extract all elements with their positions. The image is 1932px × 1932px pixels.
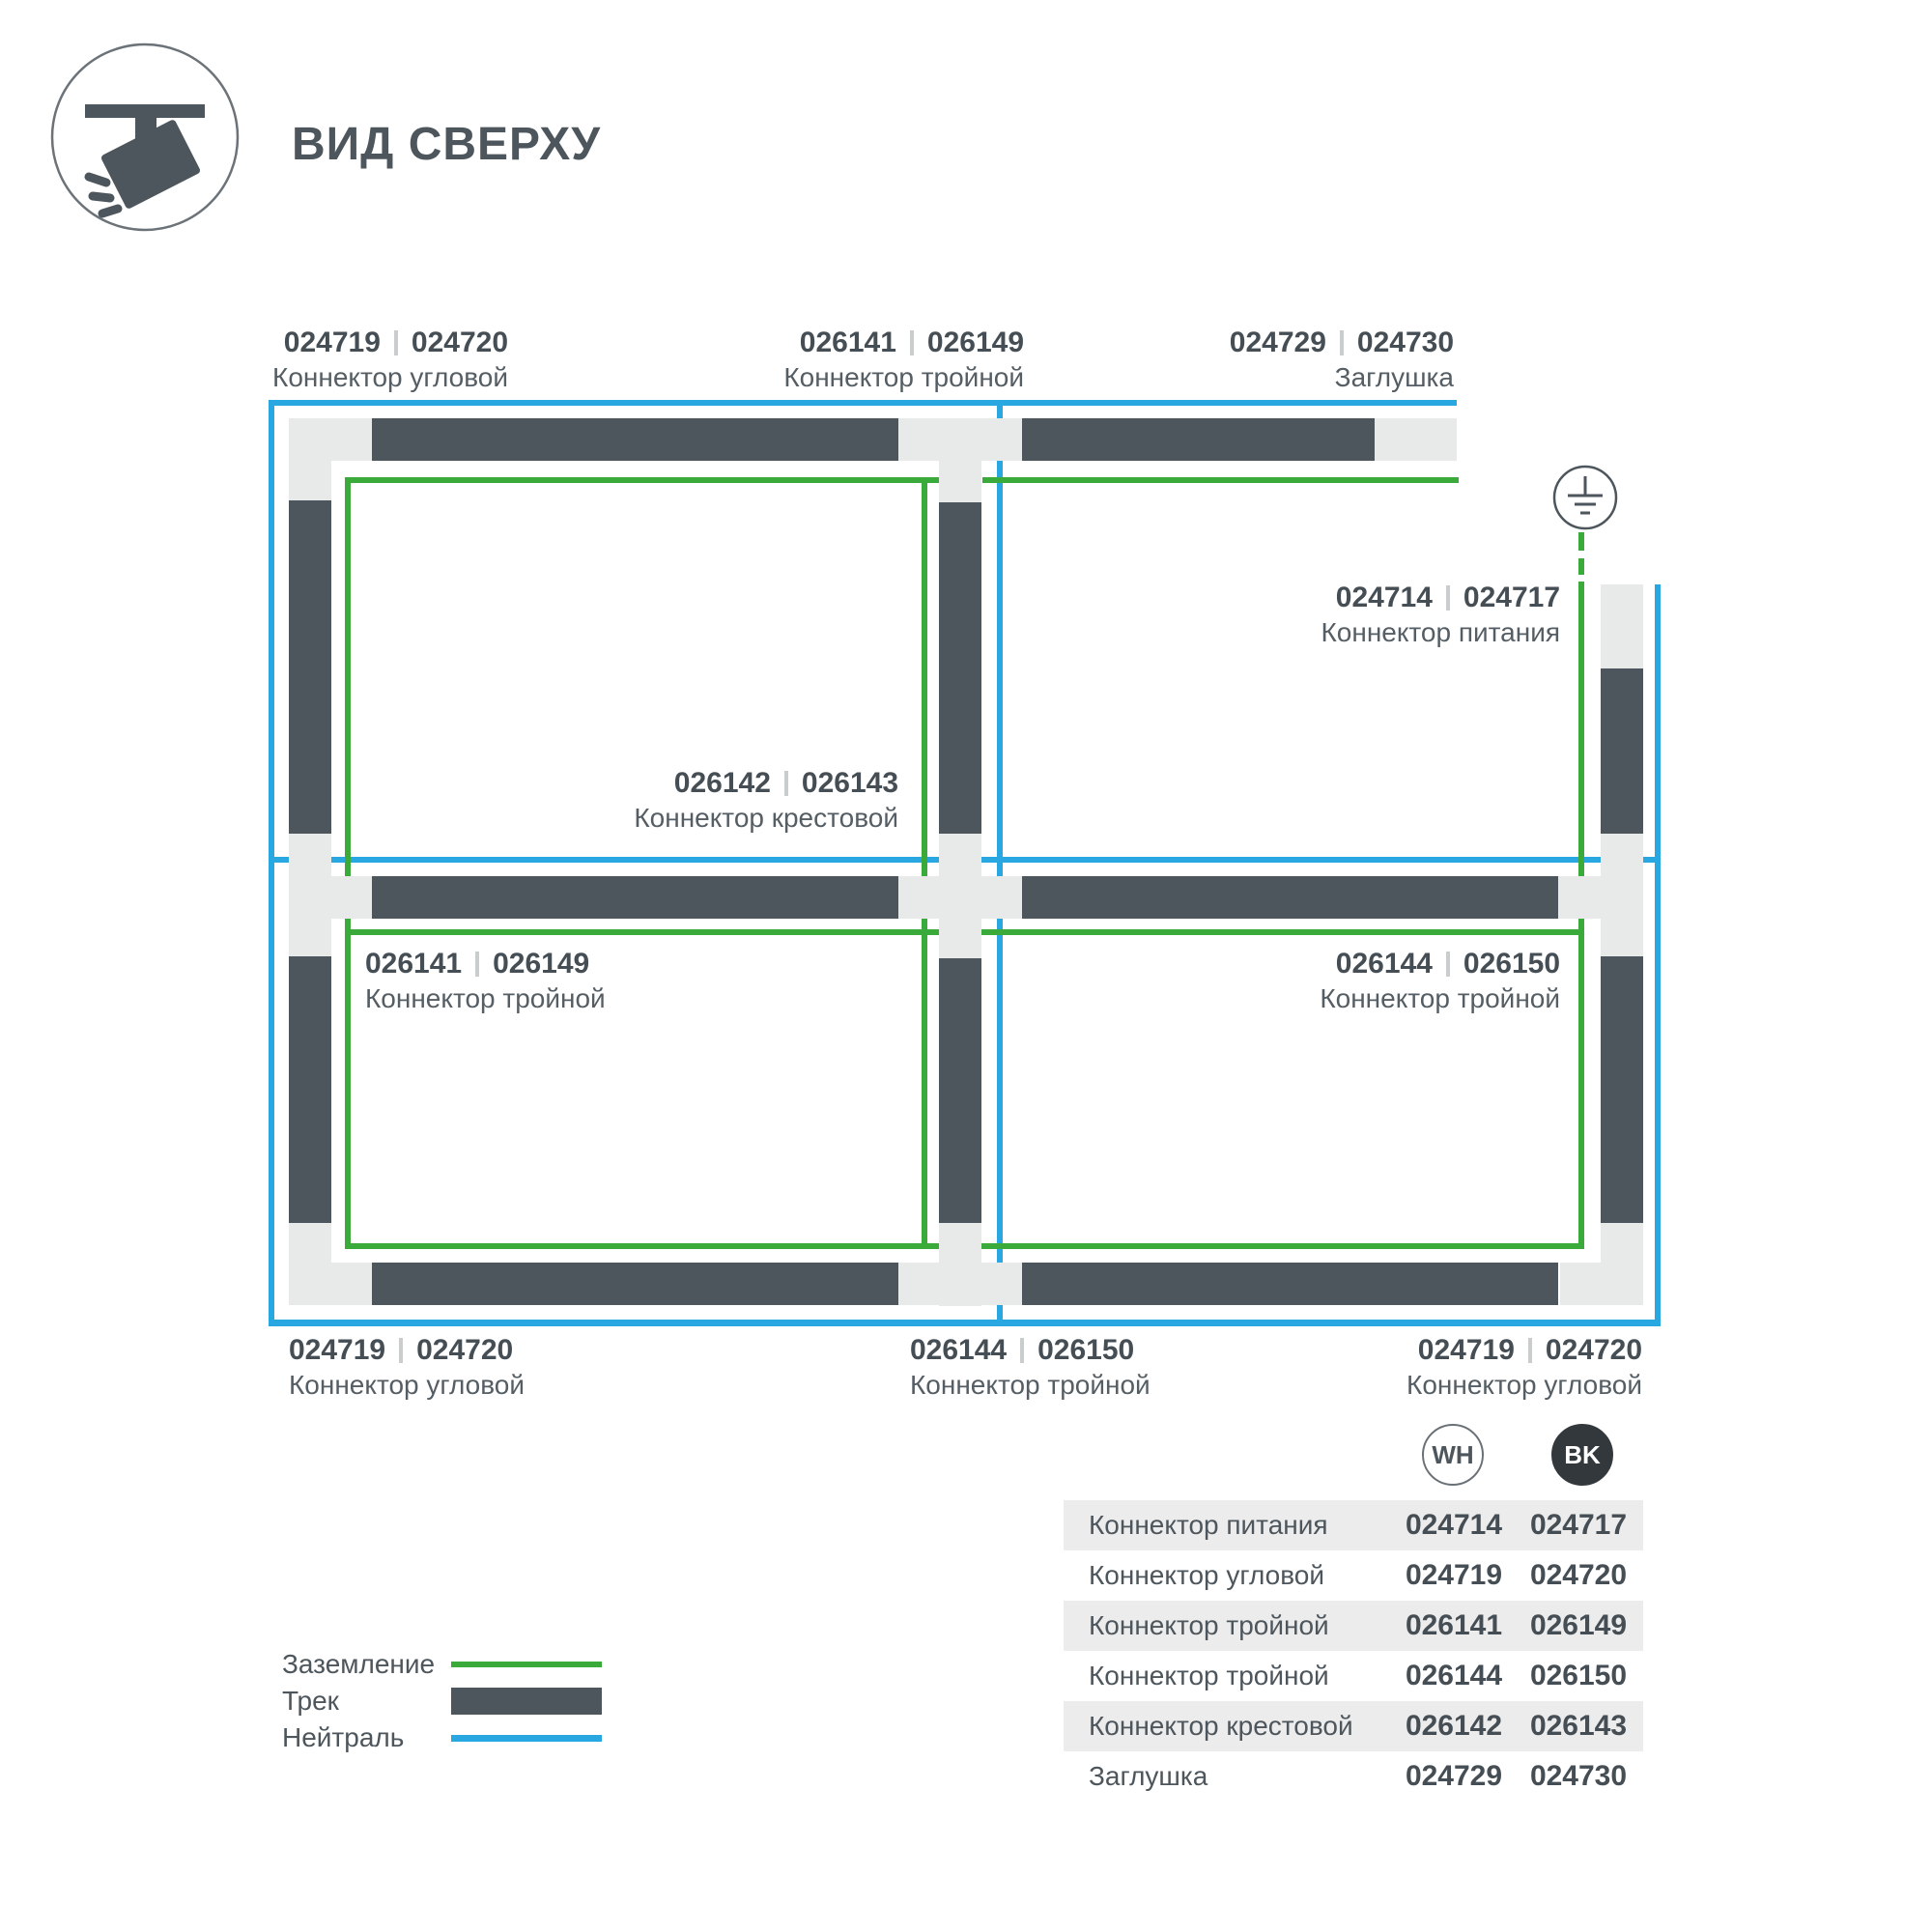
part-name: Коннектор угловой [289,1369,525,1402]
table-row: Коннектор угловой024719024720 [1064,1550,1643,1601]
tee-connector-top [939,418,981,502]
track-segment [289,956,331,1223]
table-row: Коннектор тройной026141026149 [1064,1601,1643,1651]
label-tee-connector-bottom: 026144026150 Коннектор тройной [910,1334,1151,1402]
color-badge-bk: BK [1551,1424,1613,1486]
track-segment [939,958,981,1223]
tee-connector-left [289,834,331,956]
part-number-table: Коннектор питания024714024717 Коннектор … [1064,1500,1643,1802]
divider [1528,1338,1532,1363]
grounding-earth-icon [1551,464,1619,531]
track-segment [289,500,331,834]
track-segment [1022,418,1375,461]
ground-line-middle-vertical [922,477,927,1249]
track-segment [1022,1263,1558,1305]
power-connector [1601,584,1643,668]
ground-line-swatch [451,1662,602,1667]
track-segment [939,502,981,834]
table-row: Заглушка024729024730 [1064,1751,1643,1802]
divider [784,771,788,796]
label-tee-connector-right: 026144026150 Коннектор тройной [1320,948,1560,1015]
divider [475,952,479,977]
label-power-connector: 024714024717 Коннектор питания [1321,582,1560,649]
part-codes: 024719024720 [289,1334,525,1367]
track-segment [1601,956,1643,1223]
ground-line-dash-1 [1578,532,1584,551]
label-corner-connector-bottom-left: 024719024720 Коннектор угловой [289,1334,525,1402]
neutral-line-middle-vertical [997,400,1003,1326]
table-row: Коннектор тройной026144026150 [1064,1651,1643,1701]
ground-line-bottom-a [345,1243,940,1249]
track-segment [1601,668,1643,834]
neutral-line-bottom [269,1320,1661,1326]
divider [399,1338,403,1363]
legend-label: Трек [282,1686,451,1717]
part-name: Коннектор угловой [272,361,508,394]
label-end-cap: 024729024730 Заглушка [1230,327,1454,394]
part-codes: 026142026143 [634,767,898,800]
part-codes: 024714024717 [1321,582,1560,614]
ground-line-top-b [982,477,1459,483]
legend-item-ground: Заземление [282,1646,602,1683]
ground-line-left-vertical [345,477,351,1249]
part-codes: 024719024720 [1406,1334,1642,1367]
neutral-line-swatch [451,1735,602,1742]
divider [1446,585,1450,611]
label-tee-connector-left: 026141026149 Коннектор тройной [365,948,606,1015]
divider [910,330,914,355]
page: { "page": { "title": "ВИД СВЕРХУ" }, "co… [0,0,1932,1932]
legend-item-neutral: Нейтраль [282,1719,602,1756]
legend: Заземление Трек Нейтраль [282,1646,602,1756]
table-row: Коннектор питания024714024717 [1064,1500,1643,1550]
legend-label: Нейтраль [282,1722,451,1753]
track-segment [372,876,898,919]
end-cap [1375,418,1457,461]
spotlight-top-view-icon [48,41,241,234]
part-codes: 026141026149 [365,948,606,980]
part-name: Коннектор тройной [365,982,606,1015]
divider [1020,1338,1024,1363]
label-corner-connector-bottom-right: 024719024720 Коннектор угловой [1406,1334,1642,1402]
part-codes: 026141026149 [783,327,1024,359]
track-segment [372,1263,898,1305]
ground-line-bottom-b [981,1243,1584,1249]
part-name: Коннектор тройной [783,361,1024,394]
label-corner-connector-top-left: 024719024720 Коннектор угловой [272,327,508,394]
part-codes: 026144026150 [910,1334,1151,1367]
neutral-line-top [269,400,1457,406]
tee-connector-left [331,876,372,919]
ground-line-top-a [345,477,939,483]
track-swatch [451,1688,602,1715]
part-codes: 024729024730 [1230,327,1454,359]
legend-label: Заземление [282,1649,451,1680]
divider [1446,952,1450,977]
part-name: Заглушка [1230,361,1454,394]
part-name: Коннектор тройной [1320,982,1560,1015]
divider [1340,330,1344,355]
label-cross-connector: 026142026143 Коннектор крестовой [634,767,898,835]
corner-connector-top-left [289,418,331,500]
neutral-line-right [1655,584,1661,1326]
ground-line-middle-b [981,929,1584,935]
label-tee-connector-top: 026141026149 Коннектор тройной [783,327,1024,394]
track-segment [372,418,898,461]
tee-connector-right [1601,834,1643,956]
cross-connector [898,876,1022,919]
tee-connector-right [1558,876,1601,919]
table-row: Коннектор крестовой026142026143 [1064,1701,1643,1751]
corner-connector-bottom-right [1560,1263,1643,1305]
corner-connector-bottom-left [289,1263,372,1305]
ground-line-dash-2 [1578,558,1584,575]
part-name: Коннектор крестовой [634,802,898,835]
ground-line-middle-a [345,929,940,935]
divider [394,330,398,355]
track-segment [1022,876,1558,919]
neutral-line-left [269,400,274,1326]
tee-connector-bottom [898,1263,1022,1305]
legend-item-track: Трек [282,1683,602,1719]
part-name: Коннектор угловой [1406,1369,1642,1402]
part-codes: 024719024720 [272,327,508,359]
part-name: Коннектор питания [1321,616,1560,649]
part-name: Коннектор тройной [910,1369,1151,1402]
part-codes: 026144026150 [1320,948,1560,980]
color-badge-wh: WH [1422,1424,1484,1486]
